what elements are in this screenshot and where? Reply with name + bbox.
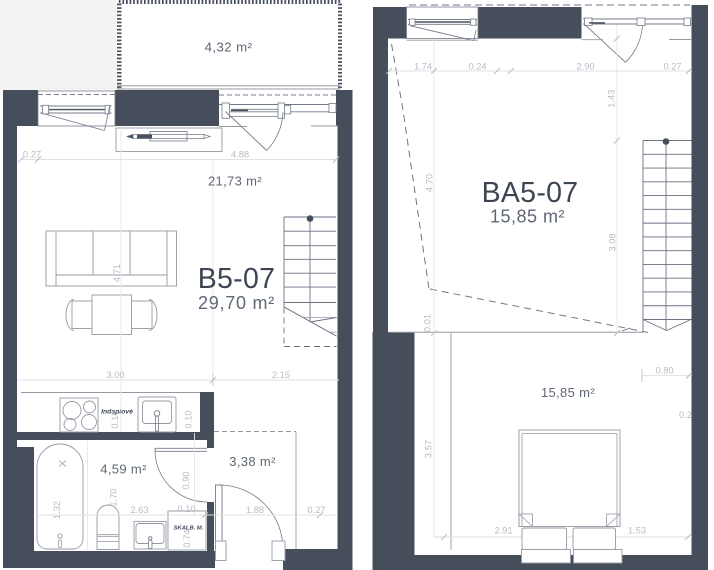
svg-text:15,85 m²: 15,85 m² <box>541 385 595 400</box>
svg-text:3.57: 3.57 <box>424 440 434 458</box>
svg-text:4,32 m²: 4,32 m² <box>205 40 253 55</box>
svg-text:21,73 m²: 21,73 m² <box>208 174 262 189</box>
svg-text:0.90: 0.90 <box>181 471 191 489</box>
svg-text:0.27: 0.27 <box>307 505 325 515</box>
svg-text:4,59 m²: 4,59 m² <box>100 462 147 477</box>
svg-text:2.91: 2.91 <box>494 526 512 536</box>
svg-text:1.70: 1.70 <box>109 488 119 506</box>
svg-text:1.74: 1.74 <box>414 62 432 72</box>
svg-text:0.24: 0.24 <box>468 62 486 72</box>
svg-text:0.27: 0.27 <box>663 62 681 72</box>
svg-text:15,85 m²: 15,85 m² <box>490 207 565 227</box>
svg-text:3,38 m²: 3,38 m² <box>229 454 276 469</box>
svg-text:29,70 m²: 29,70 m² <box>198 293 275 313</box>
svg-text:0.01: 0.01 <box>423 314 433 332</box>
svg-text:3.08: 3.08 <box>608 233 618 251</box>
svg-text:0.10: 0.10 <box>110 410 120 428</box>
svg-text:1.32: 1.32 <box>52 501 62 519</box>
svg-text:3.00: 3.00 <box>106 370 124 380</box>
svg-text:0.27: 0.27 <box>23 149 41 160</box>
svg-text:B5-07: B5-07 <box>198 263 276 295</box>
svg-text:0.74: 0.74 <box>182 529 192 547</box>
svg-text:1.43: 1.43 <box>607 90 617 108</box>
svg-text:0.80: 0.80 <box>655 366 673 376</box>
svg-text:2.63: 2.63 <box>130 505 148 515</box>
svg-text:1.53: 1.53 <box>628 526 646 536</box>
svg-text:1.88: 1.88 <box>246 505 264 515</box>
svg-text:4.71: 4.71 <box>112 264 122 282</box>
svg-text:4.88: 4.88 <box>231 149 249 160</box>
svg-text:2.90: 2.90 <box>576 62 594 72</box>
svg-text:BA5-07: BA5-07 <box>482 177 579 209</box>
svg-text:0.10: 0.10 <box>177 504 195 514</box>
svg-text:4.70: 4.70 <box>425 174 435 192</box>
svg-text:0.10: 0.10 <box>184 410 194 428</box>
svg-text:2.15: 2.15 <box>272 370 290 380</box>
